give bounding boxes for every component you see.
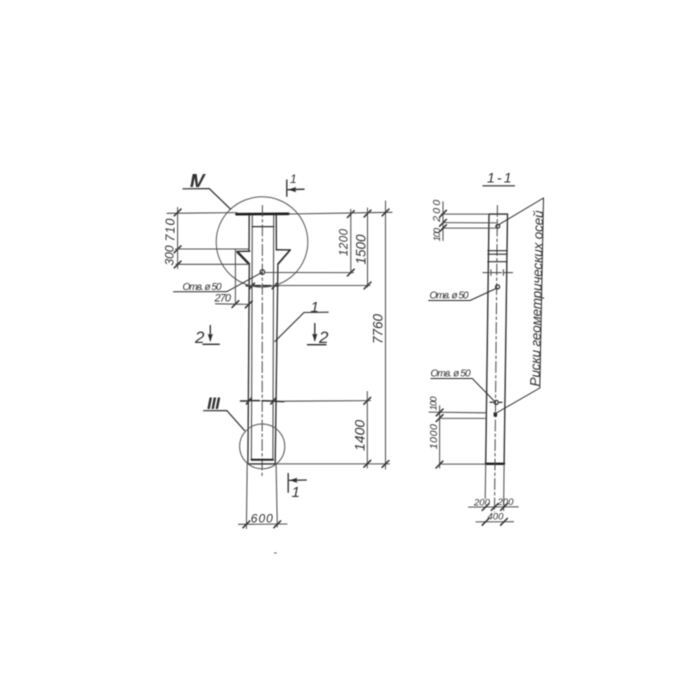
svg-text:IV: IV bbox=[190, 171, 206, 191]
svg-text:600: 600 bbox=[251, 512, 273, 526]
svg-text:200: 200 bbox=[497, 497, 515, 508]
svg-text:1-1: 1-1 bbox=[487, 170, 512, 186]
svg-text:Отв. ø 50: Отв. ø 50 bbox=[431, 369, 471, 380]
svg-text:1: 1 bbox=[290, 172, 297, 186]
svg-text:100: 100 bbox=[432, 227, 443, 241]
svg-text:200: 200 bbox=[431, 200, 443, 223]
svg-text:Отв. ø 50: Отв. ø 50 bbox=[183, 282, 222, 293]
svg-text:100: 100 bbox=[429, 396, 440, 411]
svg-text:710: 710 bbox=[164, 218, 178, 241]
svg-text:2: 2 bbox=[318, 328, 329, 347]
svg-text:1: 1 bbox=[292, 484, 300, 501]
svg-text:1500: 1500 bbox=[354, 234, 369, 265]
svg-text:1400: 1400 bbox=[352, 420, 368, 451]
svg-text:Риски геометрических осей: Риски геометрических осей bbox=[527, 210, 546, 387]
svg-text:300: 300 bbox=[163, 245, 177, 265]
svg-text:7760: 7760 bbox=[371, 313, 386, 344]
svg-text:Отв. ø 50: Отв. ø 50 bbox=[430, 291, 469, 302]
svg-text:III: III bbox=[207, 394, 221, 413]
svg-text:2: 2 bbox=[194, 328, 205, 347]
svg-text:1: 1 bbox=[311, 299, 319, 316]
svg-text:400: 400 bbox=[488, 512, 505, 523]
svg-text:270: 270 bbox=[214, 293, 232, 305]
svg-text:1200: 1200 bbox=[339, 228, 351, 256]
svg-text:200: 200 bbox=[473, 498, 491, 509]
svg-text:1000: 1000 bbox=[428, 424, 440, 449]
